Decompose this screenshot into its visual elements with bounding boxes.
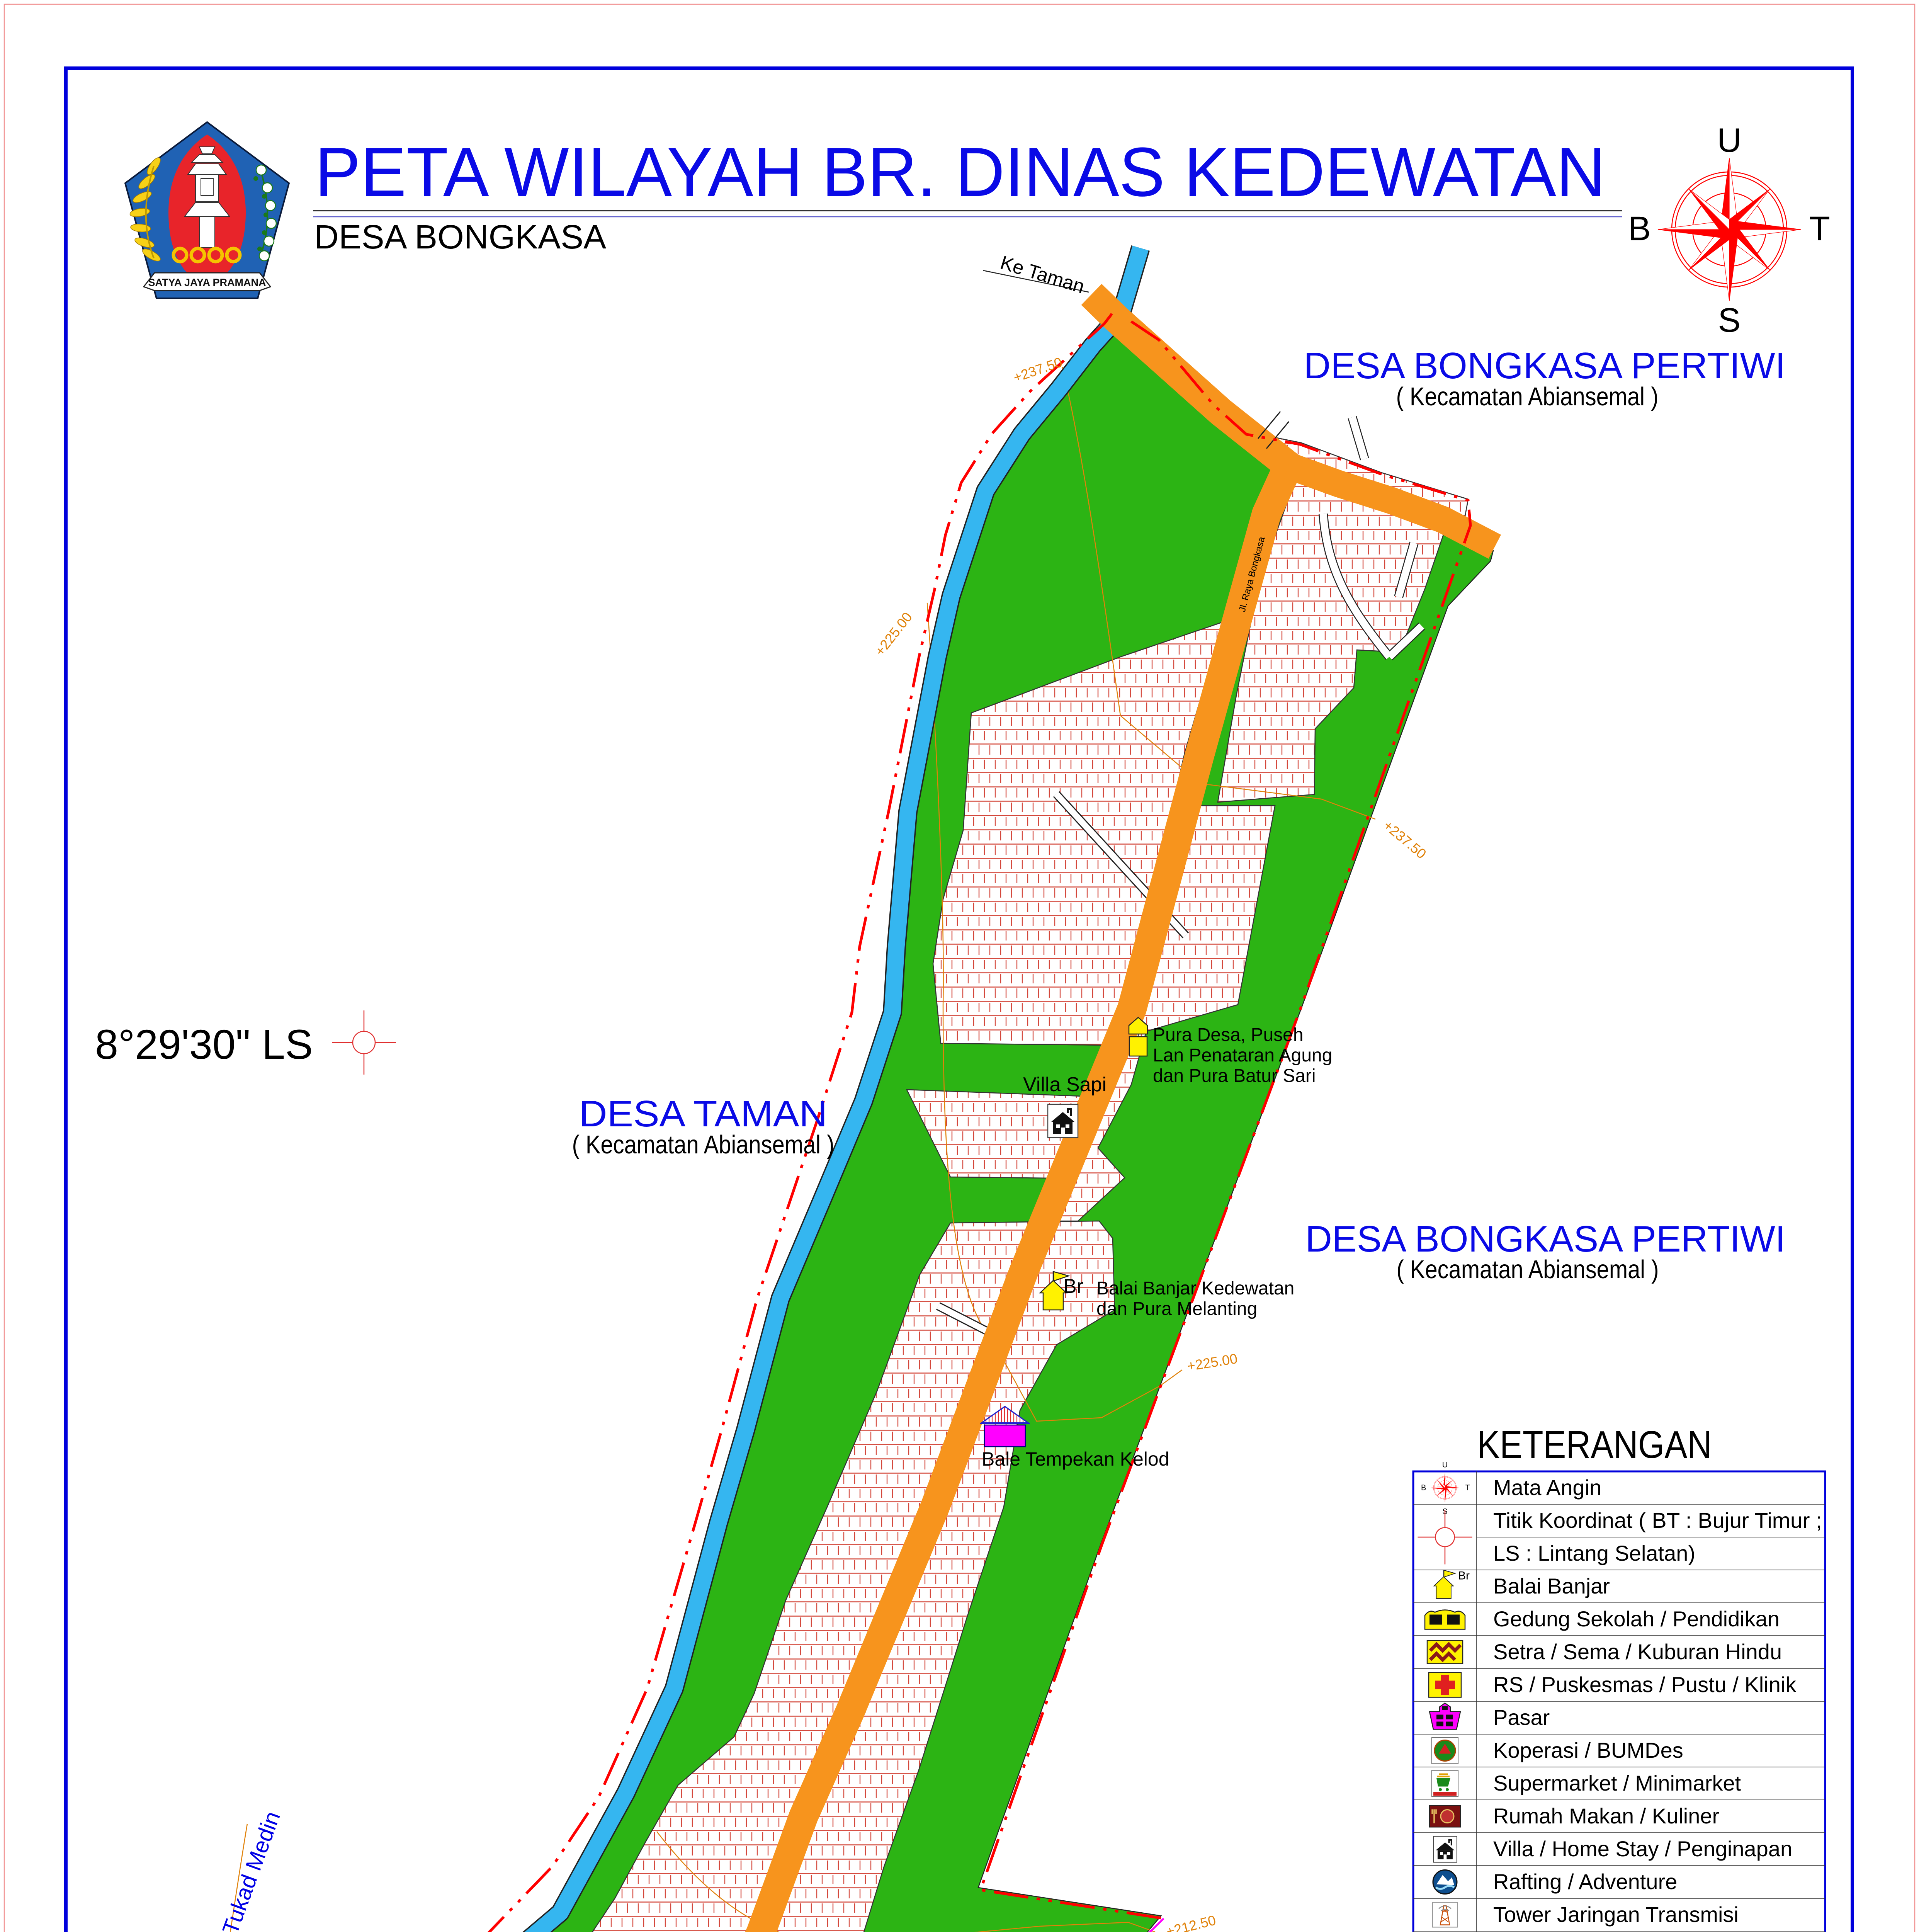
svg-text:Gedung Sekolah / Pendidikan: Gedung Sekolah / Pendidikan [1493,1607,1780,1631]
svg-text:LS : Lintang Selatan): LS : Lintang Selatan) [1493,1541,1695,1565]
svg-text:( Kecamatan Abiansemal ): ( Kecamatan Abiansemal ) [572,1130,835,1159]
svg-text:Setra / Sema / Kuburan Hindu: Setra / Sema / Kuburan Hindu [1493,1639,1782,1664]
svg-text:T: T [1465,1484,1470,1492]
svg-text:S: S [1718,301,1741,339]
svg-text:Br: Br [1063,1275,1083,1298]
svg-text:( Kecamatan Abiansemal ): ( Kecamatan Abiansemal ) [1396,382,1659,411]
svg-text:dan Pura Batur Sari: dan Pura Batur Sari [1153,1066,1316,1086]
svg-text:Villa / Home Stay / Penginapan: Villa / Home Stay / Penginapan [1493,1837,1792,1861]
svg-text:Rafting / Adventure: Rafting / Adventure [1493,1869,1677,1894]
svg-text:SATYA JAYA PRAMANA: SATYA JAYA PRAMANA [148,277,266,288]
svg-text:T: T [1809,209,1830,247]
svg-text:DESA BONGKASA PERTIWI: DESA BONGKASA PERTIWI [1304,345,1786,386]
svg-text:B: B [1421,1484,1426,1492]
svg-text:Mata Angin: Mata Angin [1493,1475,1601,1500]
svg-text:KETERANGAN: KETERANGAN [1477,1423,1712,1466]
svg-text:U: U [1442,1461,1448,1469]
svg-text:DESA BONGKASA: DESA BONGKASA [314,218,606,256]
svg-text:DESA TAMAN: DESA TAMAN [579,1093,828,1134]
svg-text:Balai Banjar Kedewatan: Balai Banjar Kedewatan [1096,1278,1294,1299]
svg-text:Pasar: Pasar [1493,1705,1550,1730]
svg-text:RS / Puskesmas / Pustu / Klini: RS / Puskesmas / Pustu / Klinik [1493,1672,1797,1697]
svg-text:Br: Br [1458,1570,1470,1582]
svg-text:PETA WILAYAH BR. DINAS KEDEWAT: PETA WILAYAH BR. DINAS KEDEWATAN [315,133,1606,211]
svg-text:Balai Banjar: Balai Banjar [1493,1574,1610,1598]
svg-text:dan Pura Melanting: dan Pura Melanting [1096,1299,1257,1319]
svg-text:Rumah Makan / Kuliner: Rumah Makan / Kuliner [1493,1804,1719,1828]
svg-text:Supermarket / Minimarket: Supermarket / Minimarket [1493,1771,1741,1795]
svg-text:8°29'30" LS: 8°29'30" LS [95,1021,313,1068]
svg-text:Pura Desa, Puseh: Pura Desa, Puseh [1153,1025,1304,1045]
svg-text:DESA BONGKASA PERTIWI: DESA BONGKASA PERTIWI [1305,1218,1786,1260]
svg-text:Bale Tempekan Kelod: Bale Tempekan Kelod [982,1448,1169,1470]
svg-text:U: U [1717,121,1742,159]
svg-text:Koperasi / BUMDes: Koperasi / BUMDes [1493,1738,1683,1762]
svg-text:Villa Sapi: Villa Sapi [1023,1073,1107,1096]
svg-text:B: B [1628,209,1651,247]
svg-text:Tower Jaringan Transmisi: Tower Jaringan Transmisi [1493,1902,1739,1927]
svg-text:Titik Koordinat ( BT : Bujur T: Titik Koordinat ( BT : Bujur Timur ; [1493,1508,1822,1532]
svg-text:( Kecamatan Abiansemal ): ( Kecamatan Abiansemal ) [1397,1255,1659,1284]
svg-text:Lan Penataran Agung: Lan Penataran Agung [1153,1045,1332,1066]
